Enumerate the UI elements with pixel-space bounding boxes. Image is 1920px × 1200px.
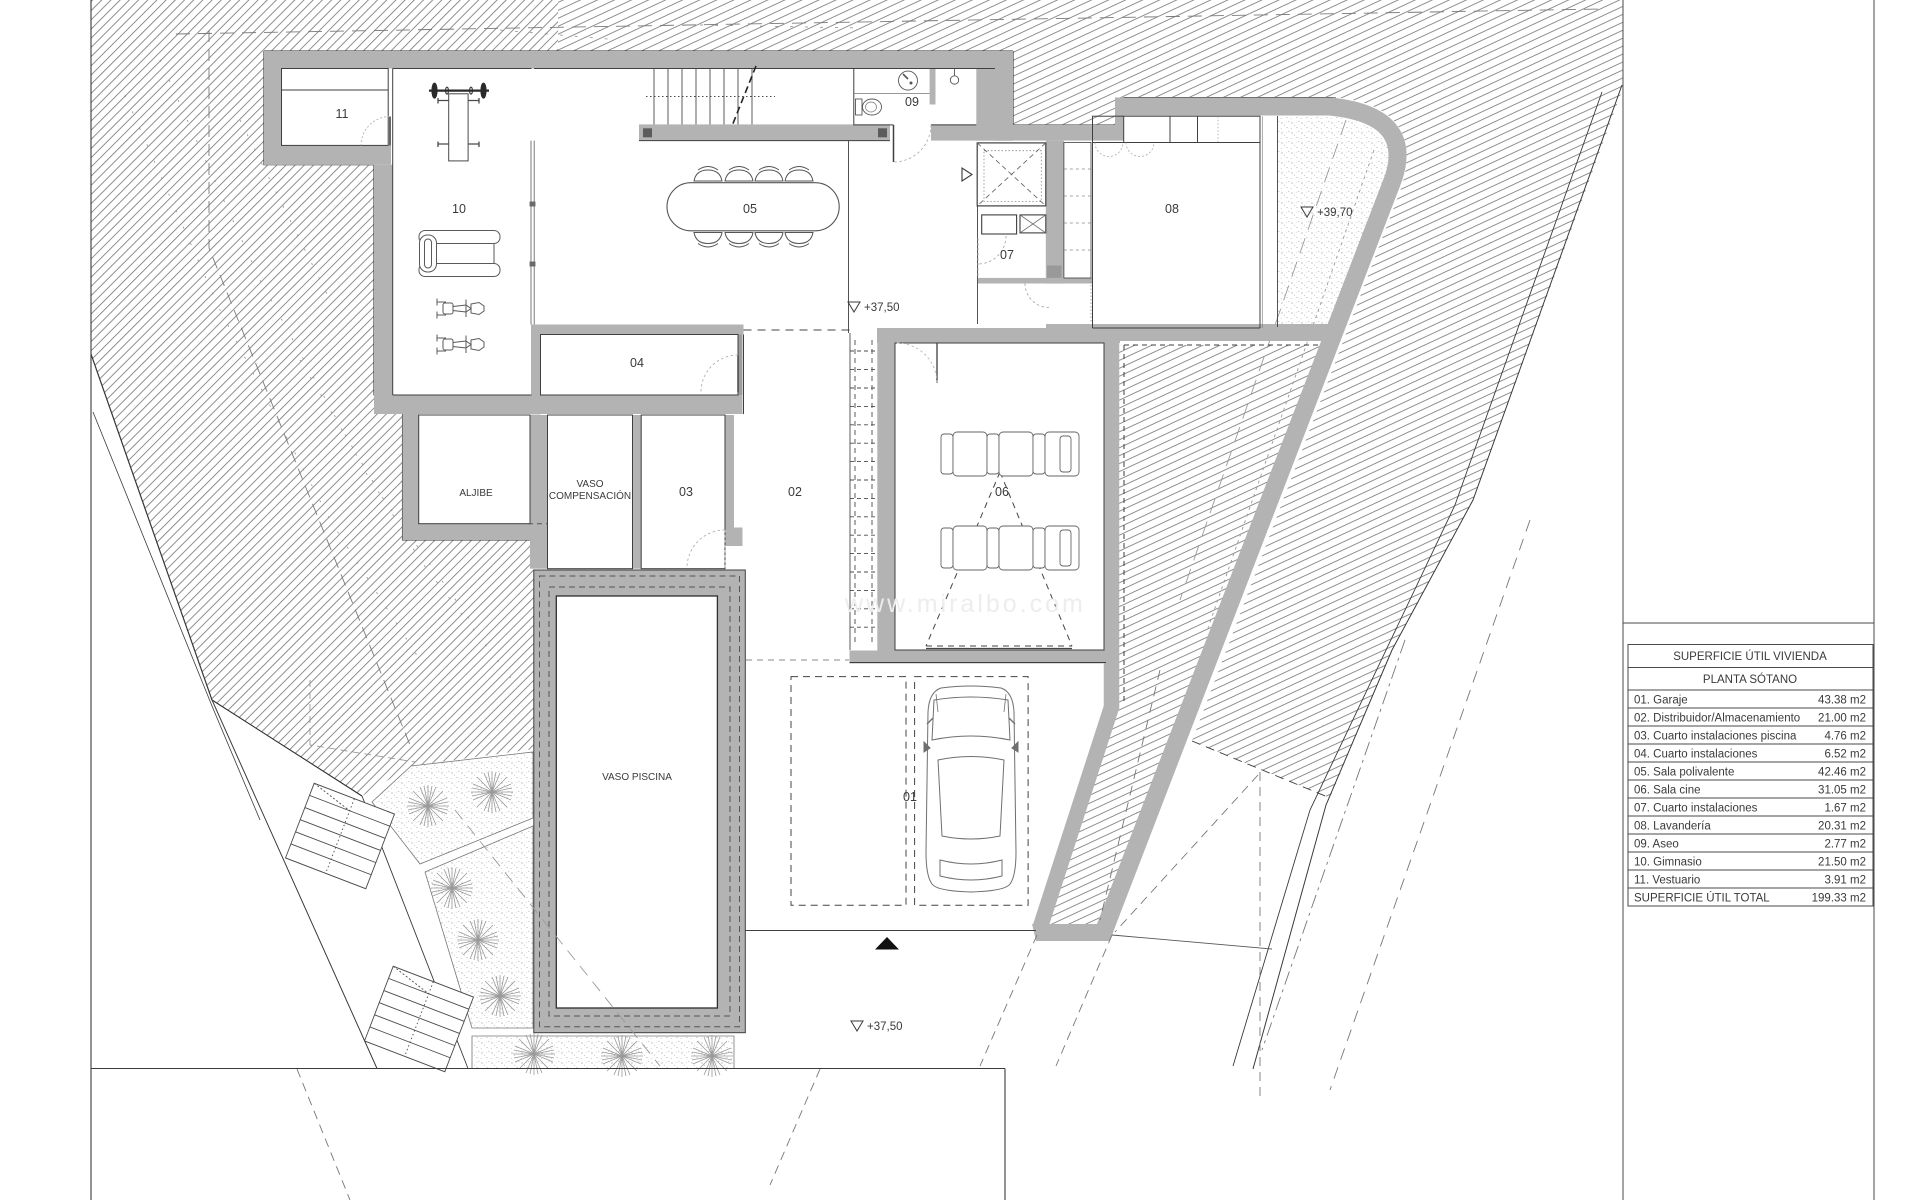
svg-text:VASO PISCINA: VASO PISCINA [602, 772, 672, 783]
svg-text:VASO: VASO [576, 479, 603, 490]
svg-text:6.52 m2: 6.52 m2 [1824, 749, 1866, 761]
svg-text:08. Lavandería: 08. Lavandería [1634, 821, 1711, 833]
svg-text:04: 04 [630, 356, 644, 370]
svg-text:COMPENSACIÓN: COMPENSACIÓN [549, 489, 631, 502]
svg-text:SUPERFICIE ÚTIL VIVIENDA: SUPERFICIE ÚTIL VIVIENDA [1673, 650, 1827, 663]
svg-text:+37,50: +37,50 [867, 1021, 903, 1033]
svg-text:10: 10 [452, 202, 466, 216]
svg-text:06. Sala cine: 06. Sala cine [1634, 785, 1701, 797]
svg-text:ALJIBE: ALJIBE [459, 488, 493, 499]
svg-text:11: 11 [336, 107, 349, 121]
svg-text:08: 08 [1165, 202, 1179, 216]
svg-text:02. Distribuidor/Almacenamient: 02. Distribuidor/Almacenamiento [1634, 713, 1800, 725]
svg-text:4.76 m2: 4.76 m2 [1824, 731, 1866, 743]
svg-text:31.05 m2: 31.05 m2 [1818, 785, 1866, 797]
svg-text:03: 03 [679, 485, 693, 499]
svg-text:199.33 m2: 199.33 m2 [1812, 893, 1866, 905]
svg-text:3.91 m2: 3.91 m2 [1824, 875, 1866, 887]
svg-text:05. Sala polivalente: 05. Sala polivalente [1634, 767, 1734, 779]
svg-text:www.miralbo.com: www.miralbo.com [844, 590, 1086, 618]
svg-text:SUPERFICIE ÚTIL TOTAL: SUPERFICIE ÚTIL TOTAL [1634, 892, 1770, 905]
svg-text:11. Vestuario: 11. Vestuario [1634, 875, 1700, 887]
svg-text:2.77 m2: 2.77 m2 [1824, 839, 1866, 851]
svg-text:+39,70: +39,70 [1317, 207, 1353, 219]
svg-text:05: 05 [743, 202, 757, 216]
svg-text:06: 06 [995, 485, 1009, 499]
svg-text:04. Cuarto instalaciones: 04. Cuarto instalaciones [1634, 749, 1758, 761]
svg-text:+37,50: +37,50 [864, 302, 900, 314]
svg-text:01. Garaje: 01. Garaje [1634, 695, 1688, 707]
svg-text:21.50 m2: 21.50 m2 [1818, 857, 1866, 869]
svg-text:03. Cuarto instalaciones pisci: 03. Cuarto instalaciones piscina [1634, 731, 1797, 743]
svg-text:09: 09 [905, 95, 919, 109]
svg-text:01: 01 [903, 790, 917, 804]
svg-text:07. Cuarto instalaciones: 07. Cuarto instalaciones [1634, 803, 1758, 815]
svg-text:10. Gimnasio: 10. Gimnasio [1634, 857, 1702, 869]
svg-text:21.00 m2: 21.00 m2 [1818, 713, 1866, 725]
svg-text:1.67 m2: 1.67 m2 [1824, 803, 1866, 815]
svg-text:20.31 m2: 20.31 m2 [1818, 821, 1866, 833]
svg-text:PLANTA SÓTANO: PLANTA SÓTANO [1703, 673, 1797, 686]
svg-text:02: 02 [788, 485, 802, 499]
svg-text:09. Aseo: 09. Aseo [1634, 839, 1679, 851]
svg-text:43.38 m2: 43.38 m2 [1818, 695, 1866, 707]
svg-text:42.46 m2: 42.46 m2 [1818, 767, 1866, 779]
svg-text:07: 07 [1000, 248, 1014, 262]
